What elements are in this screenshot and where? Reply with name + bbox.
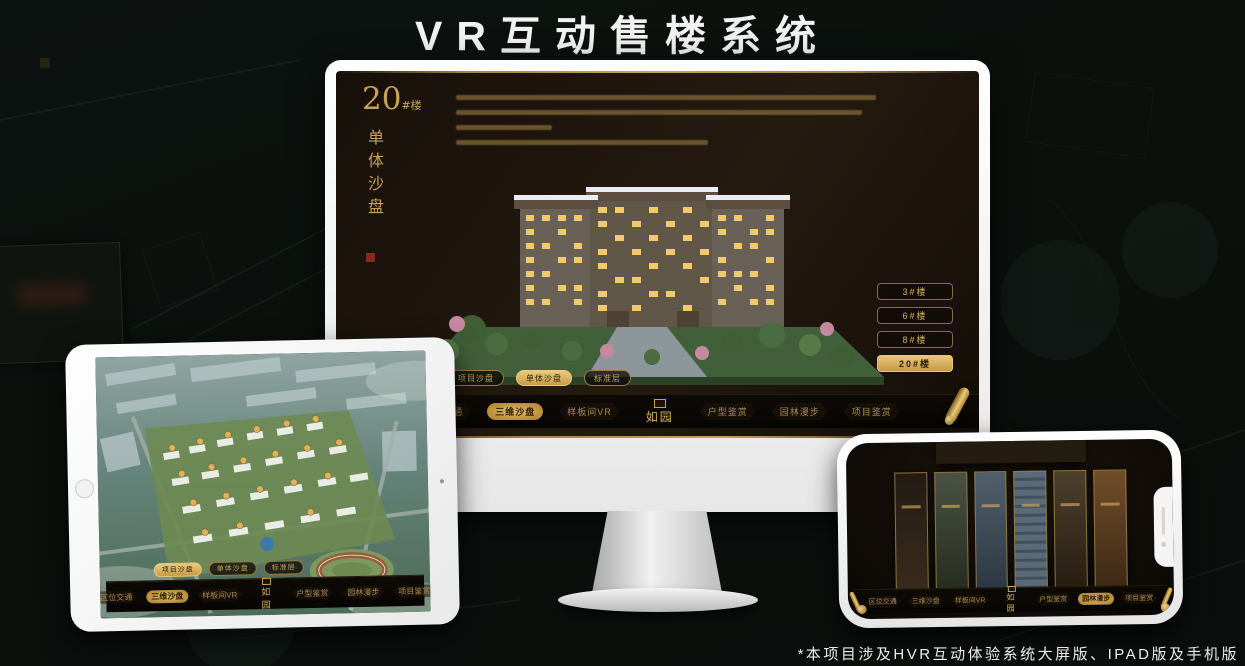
menu-item-floorplan[interactable]: 户型鉴赏: [1035, 593, 1071, 606]
floor-button-6[interactable]: 6#楼: [877, 307, 953, 324]
building-number: 20: [362, 81, 401, 117]
logo-seal-icon: [1008, 586, 1016, 592]
app-logo: 如园: [646, 399, 674, 425]
floor-button-group: 3#楼 6#楼 8#楼 20#楼: [877, 283, 953, 372]
seal-icon: [366, 253, 375, 262]
menu-item-showroom-vr[interactable]: 样板间VR: [559, 403, 620, 420]
phone-device: 区位交通 三维沙盘 样板间VR 如园 户型鉴赏 园林漫步 项目鉴赏: [837, 430, 1184, 629]
menu-item-garden-walk[interactable]: 园林漫步: [772, 403, 828, 420]
menu-item-3d-sandbox[interactable]: 三维沙盘: [908, 595, 944, 608]
phone-screen: 区位交通 三维沙盘 样板间VR 如园 户型鉴赏 园林漫步 项目鉴赏: [846, 439, 1174, 620]
speaker-icon: [1162, 507, 1165, 535]
logo-seal-icon: [654, 399, 666, 408]
menu-item-location[interactable]: 区位交通: [865, 596, 901, 609]
tab-single-sandbox[interactable]: 单体沙盘: [516, 370, 572, 386]
page-title: VR互动售楼系统: [0, 2, 1245, 62]
menu-item-3d-sandbox[interactable]: 三维沙盘: [487, 403, 543, 420]
camera-dot-icon: [1161, 542, 1166, 547]
gallery-panel[interactable]: [934, 472, 969, 596]
floor-button-3[interactable]: 3#楼: [877, 283, 953, 300]
interior-ceiling: [936, 440, 1086, 464]
tab-standard-floor[interactable]: 标准层: [264, 560, 304, 575]
menu-item-showroom-vr[interactable]: 样板间VR: [951, 594, 990, 607]
menu-item-project-view[interactable]: 项目鉴赏: [844, 403, 900, 420]
building-3d-model[interactable]: [402, 129, 902, 399]
monitor-stand-base: [558, 588, 758, 612]
gallery-panel[interactable]: [1014, 470, 1049, 594]
floor-button-8[interactable]: 8#楼: [877, 331, 953, 348]
page: VR互动售楼系统 20#楼 单体沙盘: [0, 0, 1245, 666]
menu-item-garden-walk[interactable]: 园林漫步: [342, 585, 384, 599]
app-logo: 如园: [261, 577, 273, 610]
app-logo: 如园: [1006, 586, 1018, 614]
phone-menu-bar: 区位交通 三维沙盘 样板间VR 如园 户型鉴赏 园林漫步 项目鉴赏: [853, 585, 1169, 614]
tab-single-sandbox[interactable]: 单体沙盘: [209, 561, 257, 576]
gallery-panel[interactable]: [974, 471, 1009, 595]
camera-dot-icon: [440, 479, 444, 483]
menu-item-project-view[interactable]: 项目鉴赏: [393, 584, 430, 598]
tab-project-sandbox[interactable]: 项目沙盘: [154, 562, 202, 577]
monitor-stand: [592, 511, 722, 593]
ipad-device: 项目沙盘 单体沙盘 标准层 区位交通 三维沙盘 样板间VR 如园 户型鉴赏 园林…: [65, 337, 460, 632]
building-number-suffix: #楼: [401, 99, 421, 112]
scroll-icon[interactable]: [1160, 587, 1173, 609]
tab-project-sandbox[interactable]: 项目沙盘: [448, 370, 504, 386]
footnote: *本项目涉及HVR互动体验系统大屏版、IPAD版及手机版: [798, 643, 1239, 664]
menu-item-showroom-vr[interactable]: 样板间VR: [197, 588, 242, 602]
home-button[interactable]: [75, 479, 94, 498]
gallery-panel[interactable]: [894, 472, 929, 596]
floor-button-20[interactable]: 20#楼: [877, 355, 953, 372]
sandbox-sub-tabs: 项目沙盘 单体沙盘 标准层: [448, 370, 631, 386]
gallery-panels: [894, 469, 1128, 596]
screen-top-rule: [336, 71, 979, 73]
gallery-panel[interactable]: [1053, 470, 1088, 594]
phone-notch: [1153, 487, 1173, 567]
menu-item-project-view[interactable]: 项目鉴赏: [1121, 592, 1157, 605]
tab-standard-floor[interactable]: 标准层: [584, 370, 631, 386]
ipad-screen: 项目沙盘 单体沙盘 标准层 区位交通 三维沙盘 样板间VR 如园 户型鉴赏 园林…: [95, 351, 430, 619]
menu-item-floorplan[interactable]: 户型鉴赏: [700, 403, 756, 420]
scroll-icon[interactable]: [849, 591, 863, 613]
gallery-panel[interactable]: [1093, 469, 1128, 593]
menu-item-3d-sandbox[interactable]: 三维沙盘: [146, 589, 188, 603]
menu-item-floorplan[interactable]: 户型鉴赏: [291, 586, 333, 600]
logo-seal-icon: [262, 577, 271, 584]
building-heading-vertical: 单体沙盘: [362, 129, 386, 247]
menu-item-garden-walk[interactable]: 园林漫步: [1078, 593, 1114, 606]
menu-item-location[interactable]: 区位交通: [95, 590, 137, 604]
